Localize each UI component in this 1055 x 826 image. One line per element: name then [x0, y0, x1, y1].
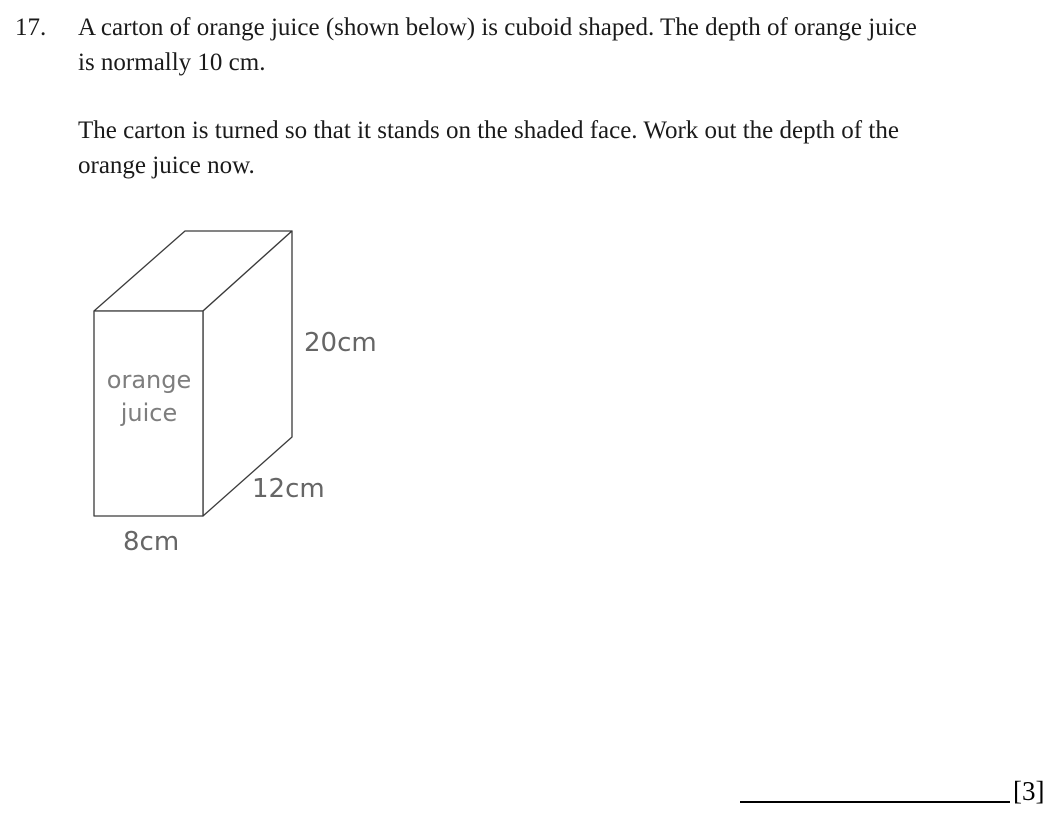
orange-juice-label: orange juice [94, 364, 204, 430]
width-dimension-label: 8cm [123, 527, 179, 557]
question-number: 17. [15, 10, 46, 45]
exam-page: 17. A carton of orange juice (shown belo… [0, 0, 1055, 826]
answer-line [740, 801, 1010, 803]
marks-badge: [3] [1013, 776, 1044, 807]
question-text-line-3: The carton is turned so that it stands o… [78, 113, 899, 148]
question-paragraph-1: A carton of orange juice (shown below) i… [78, 10, 917, 80]
question-text-line-1: A carton of orange juice (shown below) i… [78, 10, 917, 45]
question-text-line-2: is normally 10 cm. [78, 45, 917, 80]
orange-juice-label-line-2: juice [94, 397, 204, 430]
orange-juice-label-line-1: orange [94, 364, 204, 397]
question-text-line-4: orange juice now. [78, 148, 899, 183]
question-paragraph-2: The carton is turned so that it stands o… [78, 113, 899, 183]
height-dimension-label: 20cm [304, 328, 377, 358]
depth-dimension-label: 12cm [252, 474, 325, 504]
